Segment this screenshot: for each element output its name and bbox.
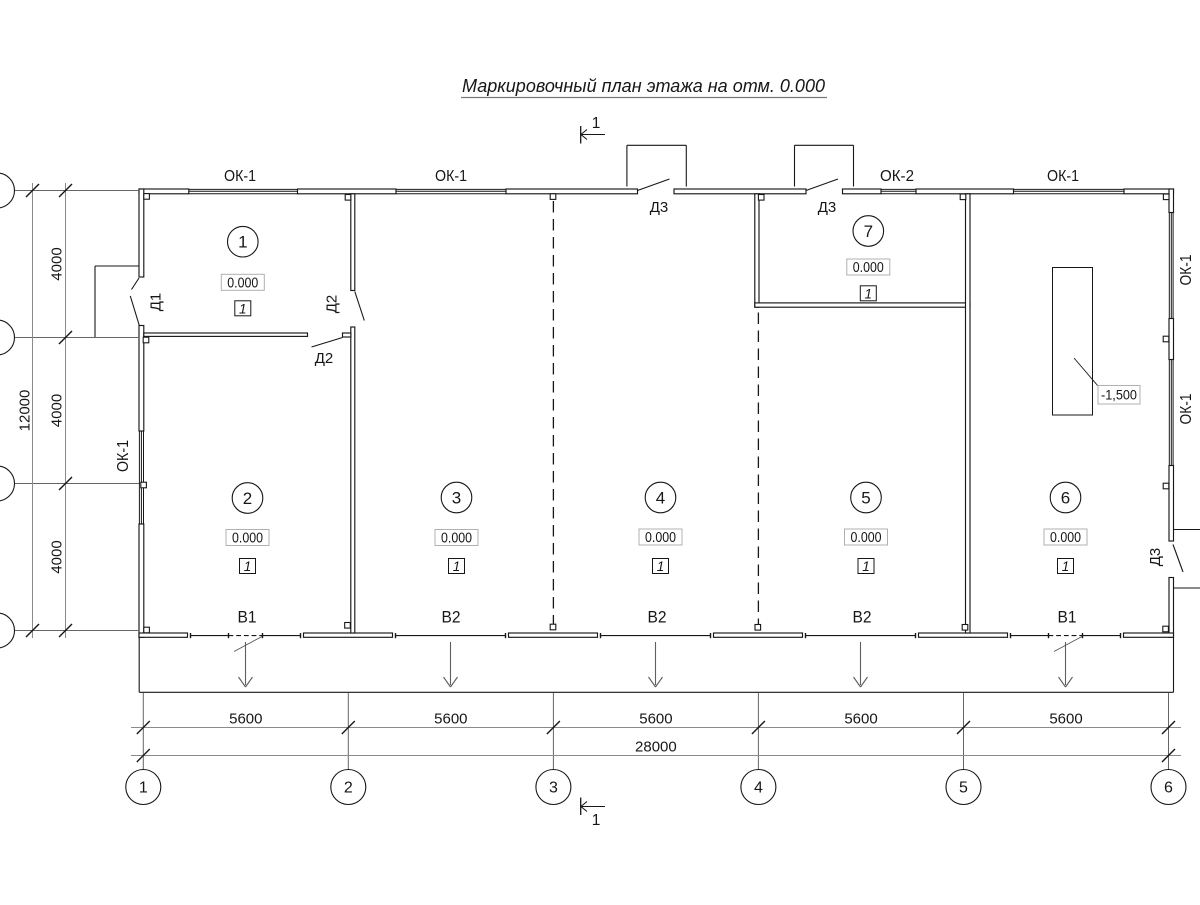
svg-text:7: 7: [864, 222, 873, 241]
svg-text:4000: 4000: [49, 540, 66, 573]
svg-text:0.000: 0.000: [1050, 530, 1081, 546]
svg-text:Д3: Д3: [818, 199, 837, 216]
svg-text:0.000: 0.000: [227, 275, 258, 291]
svg-text:В1: В1: [1058, 609, 1077, 627]
svg-text:5600: 5600: [229, 711, 262, 728]
svg-text:Д2: Д2: [324, 295, 341, 314]
svg-text:1: 1: [453, 559, 461, 574]
svg-text:28000: 28000: [635, 739, 677, 756]
svg-text:1: 1: [592, 812, 601, 829]
svg-text:5600: 5600: [844, 711, 877, 728]
svg-text:ОК-2: ОК-2: [880, 168, 914, 185]
svg-text:Маркировочный план этажа на от: Маркировочный план этажа на отм. 0.000: [462, 75, 826, 96]
svg-text:ОК-1: ОК-1: [435, 168, 467, 185]
svg-text:1: 1: [244, 559, 252, 574]
svg-text:ОК-1: ОК-1: [115, 440, 132, 472]
svg-text:1: 1: [657, 559, 665, 574]
svg-text:1: 1: [239, 301, 247, 316]
svg-text:-1,500: -1,500: [1101, 387, 1137, 403]
svg-text:ОК-1: ОК-1: [1047, 168, 1079, 185]
svg-text:6: 6: [1164, 780, 1173, 797]
svg-text:1: 1: [865, 286, 873, 301]
svg-text:3: 3: [452, 489, 461, 508]
svg-text:В1: В1: [238, 609, 257, 627]
svg-text:В2: В2: [648, 609, 667, 627]
svg-text:Д3: Д3: [650, 199, 669, 216]
svg-text:1: 1: [862, 559, 870, 574]
svg-text:1: 1: [139, 780, 148, 797]
svg-text:5600: 5600: [1049, 711, 1082, 728]
svg-text:Д3: Д3: [1147, 548, 1164, 567]
svg-text:Д1: Д1: [148, 293, 165, 312]
svg-text:12000: 12000: [17, 390, 34, 432]
svg-text:6: 6: [1061, 489, 1070, 508]
svg-text:В2: В2: [853, 609, 872, 627]
svg-text:0.000: 0.000: [853, 260, 884, 276]
svg-text:1: 1: [1062, 559, 1070, 574]
svg-text:4: 4: [656, 489, 665, 508]
svg-text:1: 1: [238, 233, 247, 252]
svg-text:0.000: 0.000: [851, 530, 882, 546]
svg-text:3: 3: [549, 780, 558, 797]
svg-text:5: 5: [861, 489, 870, 508]
svg-text:ОК-1: ОК-1: [1178, 255, 1195, 286]
svg-text:В2: В2: [442, 609, 461, 627]
svg-text:2: 2: [344, 780, 353, 797]
svg-text:5600: 5600: [639, 711, 672, 728]
svg-text:ОК-1: ОК-1: [1178, 394, 1195, 425]
svg-text:5600: 5600: [434, 711, 467, 728]
svg-text:5: 5: [959, 780, 968, 797]
svg-text:4000: 4000: [49, 394, 66, 427]
svg-text:4000: 4000: [49, 247, 66, 280]
svg-text:0.000: 0.000: [232, 531, 263, 547]
svg-text:0.000: 0.000: [441, 531, 472, 547]
svg-text:ОК-1: ОК-1: [224, 168, 256, 185]
svg-text:Д2: Д2: [315, 350, 334, 367]
svg-text:4: 4: [754, 780, 763, 797]
svg-text:1: 1: [592, 115, 601, 132]
svg-text:0.000: 0.000: [645, 530, 676, 546]
svg-text:2: 2: [243, 489, 252, 508]
